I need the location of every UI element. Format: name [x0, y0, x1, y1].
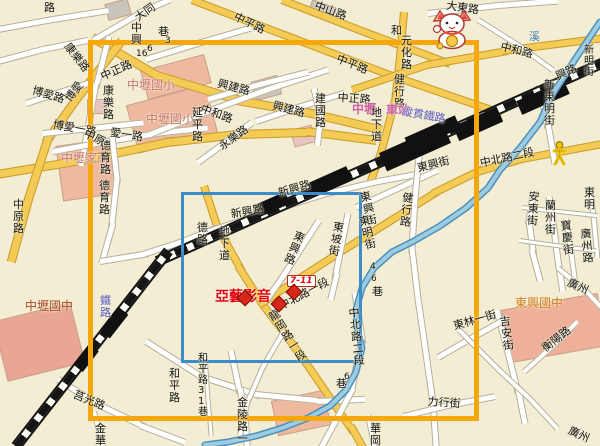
road-label: 安東街	[527, 191, 541, 227]
road-label: 地下道	[371, 107, 383, 143]
road-label: 中平路	[232, 11, 267, 36]
road-label: 德育路	[99, 180, 111, 216]
road-label: 東明	[584, 187, 596, 211]
road-label: 和平路31巷	[198, 354, 209, 419]
road-label: 中壢國小	[127, 79, 175, 92]
map-canvas[interactable]: 路大同中興巷3616中正路康樂路康樂路中平路中山路中平路大東路中和路溪新東明街新…	[0, 0, 600, 446]
road-label: 衡陽路	[540, 325, 573, 355]
road-label: 興路	[554, 63, 579, 83]
road-label: 元化路	[401, 35, 413, 71]
road-label: 新東明街	[544, 79, 556, 127]
road-label: 4	[370, 263, 376, 273]
road-label: 鐵路	[100, 295, 112, 319]
road-label: 中興	[131, 22, 143, 46]
road-label: 中和路	[499, 41, 534, 61]
road-label: 路	[44, 2, 55, 14]
road-label: 中壢國小	[146, 113, 194, 126]
road-label: 和平路	[169, 368, 181, 404]
road-label: 康樂路	[103, 85, 115, 121]
road-label: 巷	[372, 286, 383, 298]
road-label: 東興國中	[515, 297, 563, 310]
road-label: 金陵路一	[237, 397, 249, 445]
road-label: 博愛	[63, 80, 86, 105]
road-label: 6	[344, 373, 350, 383]
road-label: 廣州路	[580, 228, 595, 264]
person-icon[interactable]	[551, 141, 568, 166]
road-label: 廣州	[565, 277, 590, 297]
road-label: 金華	[95, 423, 107, 446]
road-label: 新明街	[584, 46, 595, 78]
road-label: 德路	[197, 222, 209, 246]
road-label: 中山路	[313, 0, 348, 22]
road-label: 吉安街	[499, 315, 515, 352]
road-label: 康樂路	[62, 41, 92, 74]
lucky-cat-icon[interactable]	[430, 10, 474, 50]
road-label: 6	[371, 275, 377, 285]
road-label: 華岡	[370, 423, 382, 446]
selection-box-inner	[181, 192, 362, 363]
road-label: 蘭州街	[545, 200, 557, 236]
road-label: 地下道	[219, 226, 231, 262]
road-label: 廣州	[566, 425, 591, 445]
road-label: 6	[147, 45, 153, 55]
road-label: 16	[136, 50, 147, 60]
road-label: 中北路二段	[479, 147, 535, 170]
road-label: 中壢國中	[25, 300, 73, 313]
road-label: 溪	[529, 31, 540, 43]
road-label: 建國路	[315, 93, 327, 129]
road-label: 中原路	[13, 199, 25, 235]
road-label: 寶慶街	[560, 220, 575, 257]
road-label: 和	[391, 25, 402, 37]
road-label: 博愛路	[31, 85, 66, 106]
road-label: 3	[165, 37, 171, 47]
road-label: 力行街	[427, 396, 461, 410]
